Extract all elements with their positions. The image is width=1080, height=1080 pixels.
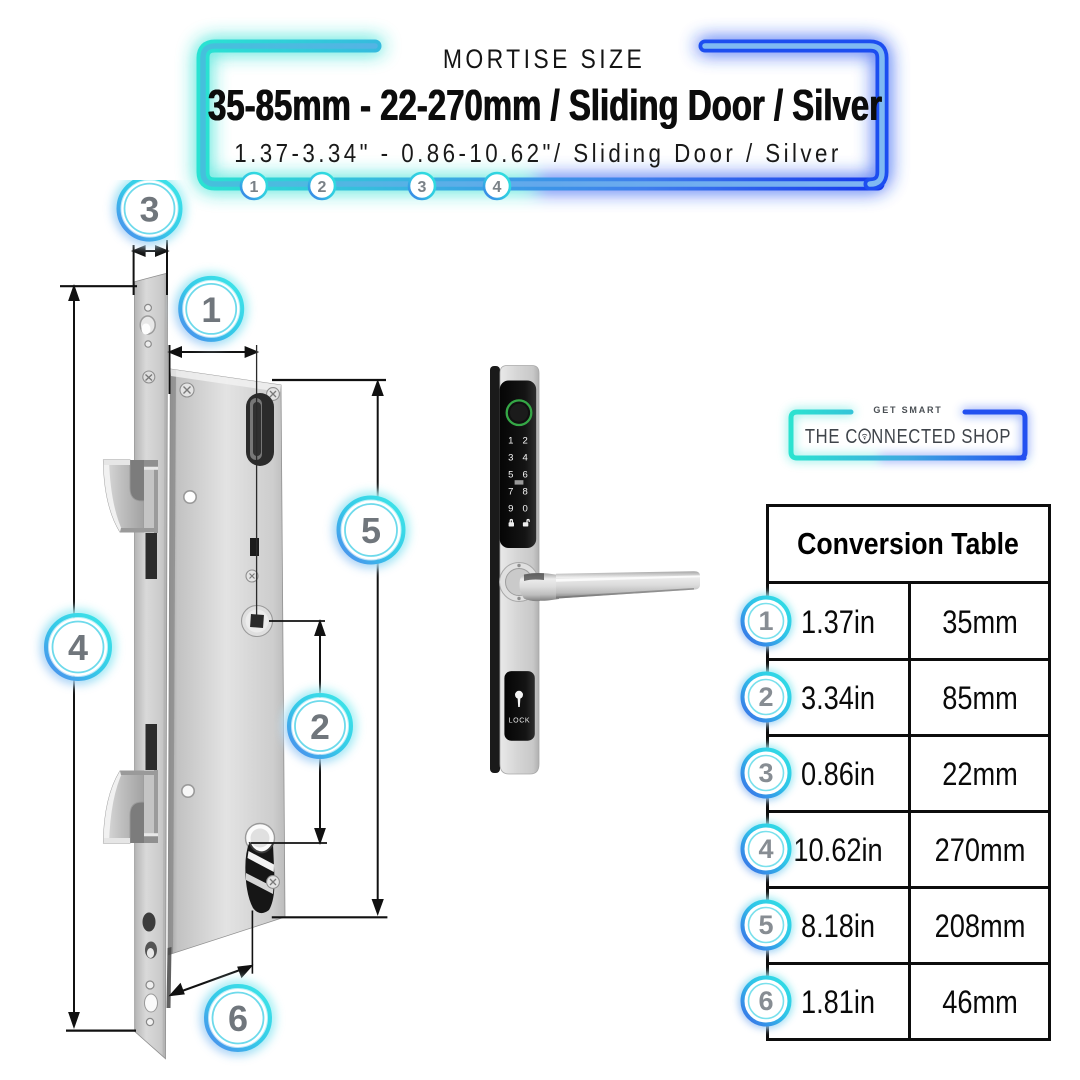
svg-text:4: 4 — [493, 179, 502, 196]
svg-text:1: 1 — [508, 436, 513, 447]
svg-text:4: 4 — [68, 627, 88, 668]
svg-text:6: 6 — [523, 470, 528, 481]
svg-text:2: 2 — [758, 682, 773, 712]
svg-text:9: 9 — [508, 504, 513, 515]
svg-text:1: 1 — [758, 606, 773, 636]
svg-text:4: 4 — [523, 453, 528, 464]
svg-text:0: 0 — [523, 504, 528, 515]
svg-text:4: 4 — [758, 834, 773, 864]
svg-text:5: 5 — [758, 910, 773, 940]
svg-text:7: 7 — [508, 487, 513, 498]
svg-text:3: 3 — [508, 453, 513, 464]
svg-text:5: 5 — [361, 510, 381, 551]
svg-text:2: 2 — [523, 436, 528, 447]
svg-text:3: 3 — [140, 190, 160, 230]
svg-text:5: 5 — [508, 470, 513, 481]
svg-text:2: 2 — [310, 707, 330, 747]
svg-text:LOCK: LOCK — [509, 718, 530, 725]
svg-text:6: 6 — [228, 998, 248, 1039]
svg-text:6: 6 — [758, 986, 773, 1016]
svg-text:1: 1 — [201, 290, 221, 330]
svg-text:3: 3 — [758, 758, 773, 788]
svg-text:8: 8 — [523, 487, 528, 498]
